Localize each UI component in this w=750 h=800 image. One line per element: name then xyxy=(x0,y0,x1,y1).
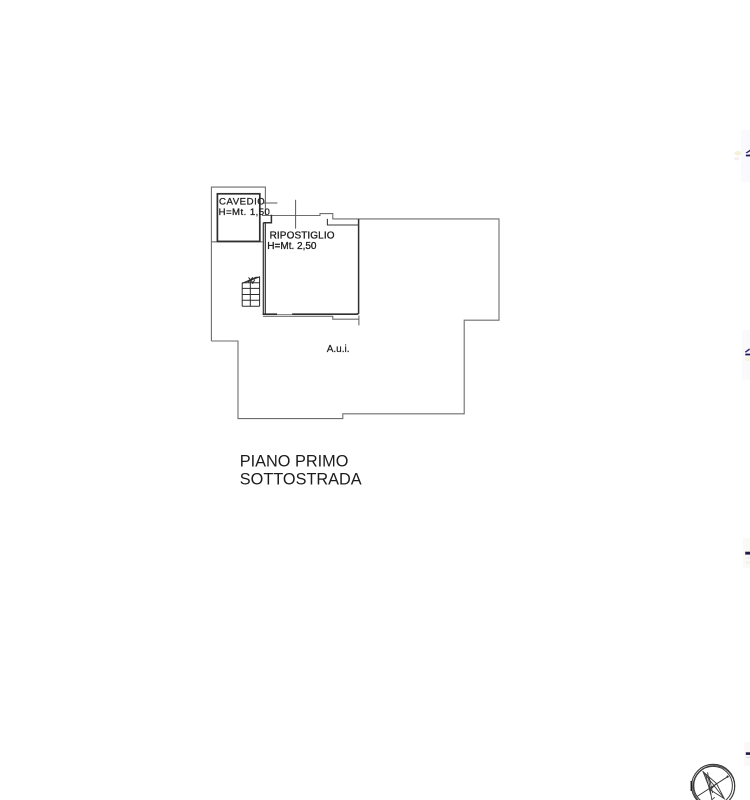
svg-text:H=Mt. 2,50: H=Mt. 2,50 xyxy=(267,241,317,252)
svg-text:PIANO PRIMO: PIANO PRIMO xyxy=(240,452,349,470)
svg-text:SOTTOSTRADA: SOTTOSTRADA xyxy=(240,470,362,488)
svg-text:RIPOSTIGLIO: RIPOSTIGLIO xyxy=(270,231,335,242)
svg-text:H=Mt. 1,50: H=Mt. 1,50 xyxy=(219,207,271,218)
svg-text:A.u.i.: A.u.i. xyxy=(327,344,350,355)
svg-text:CAVEDIO: CAVEDIO xyxy=(219,197,265,208)
